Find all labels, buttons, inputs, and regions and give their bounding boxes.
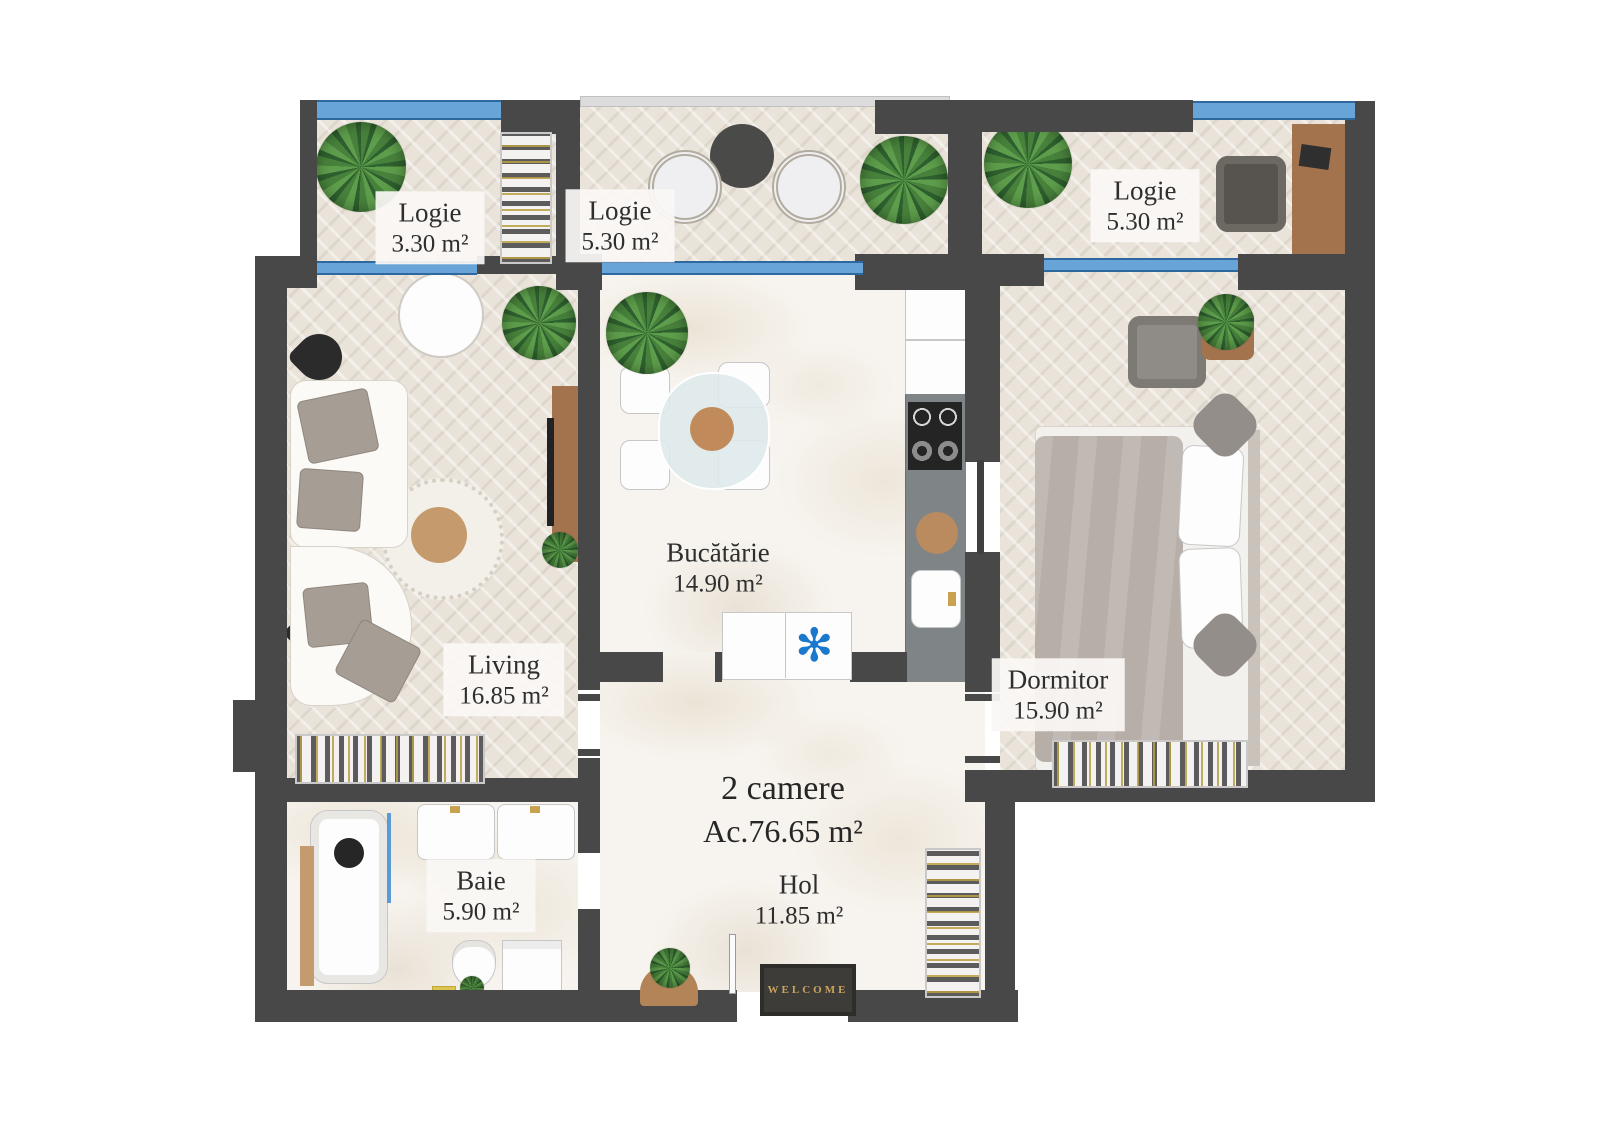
wicker-chair-right: [772, 150, 846, 224]
room-label-bucatarie: Bucătărie 14.90 m²: [666, 536, 769, 599]
headboard: [1248, 430, 1260, 766]
room-label-logie-middle: Logie 5.30 m²: [566, 189, 675, 262]
window: [317, 100, 501, 120]
cutting-board: [916, 512, 958, 554]
room-name: Logie: [582, 194, 659, 227]
sofa-cushion: [296, 468, 364, 532]
wall-segment: [578, 916, 600, 992]
pillow: [1177, 444, 1244, 547]
drying-rack-living: [295, 734, 485, 784]
door-threshold: [965, 756, 1000, 763]
floor-plan: ✻ WELCOME: [0, 0, 1600, 1131]
room-name: Dormitor: [1008, 663, 1109, 696]
fridge: [905, 282, 967, 340]
room-area: 16.85 m²: [459, 681, 548, 712]
shoe-rack: [925, 848, 981, 998]
round-side-table: [398, 272, 484, 358]
shower-glass: [387, 813, 391, 903]
desk: [1292, 124, 1346, 260]
room-name: Baie: [443, 864, 520, 897]
stove: [908, 402, 962, 470]
tall-cabinet: [905, 340, 967, 396]
plant-entry: [650, 948, 690, 988]
room-label-baie: Baie 5.90 m²: [427, 859, 536, 932]
window: [1193, 101, 1355, 120]
room-label-logie-left: Logie 3.30 m²: [376, 191, 485, 264]
wall-segment: [578, 270, 600, 690]
bath-wood-mat: [300, 846, 314, 986]
welcome-mat: WELCOME: [760, 964, 856, 1016]
wall-segment: [255, 256, 287, 1022]
laptop: [1299, 144, 1332, 170]
room-area: 14.90 m²: [666, 569, 769, 600]
welcome-mat-text: WELCOME: [768, 984, 849, 996]
plant-bedroom: [1198, 294, 1254, 350]
drying-rack-bedroom: [1052, 740, 1248, 788]
wall-segment: [233, 700, 257, 772]
window: [1044, 258, 1238, 272]
tv: [547, 418, 554, 526]
plan-title: 2 camere: [703, 767, 863, 811]
wall-segment: [578, 804, 600, 852]
wall-segment: [1345, 270, 1375, 802]
plant-living: [502, 286, 576, 360]
room-name: Hol: [755, 868, 844, 901]
room-name: Logie: [392, 196, 469, 229]
door-threshold: [578, 694, 600, 701]
plan-summary: 2 camere Ac.76.65 m²: [703, 767, 863, 853]
wall-segment: [875, 100, 948, 134]
bedroom-door-leaf: [977, 460, 984, 554]
plant-logie-middle: [860, 136, 948, 224]
room-label-dormitor: Dormitor 15.90 m²: [992, 658, 1125, 731]
plan-total-area: Ac.76.65 m²: [703, 811, 863, 853]
faucet: [530, 806, 540, 813]
room-area: 5.30 m²: [582, 227, 659, 258]
room-area: 3.30 m²: [392, 229, 469, 260]
room-area: 11.85 m²: [755, 901, 844, 932]
door-threshold: [578, 909, 600, 916]
wall-segment: [501, 100, 556, 134]
room-area: 5.90 m²: [443, 897, 520, 928]
table-tray: [690, 407, 734, 451]
wall-segment: [1345, 101, 1375, 270]
drying-rack-logie-left: [500, 132, 552, 264]
faucet: [948, 592, 956, 606]
plant-kitchen: [606, 292, 688, 374]
room-area: 15.90 m²: [1008, 696, 1109, 727]
door-threshold: [578, 749, 600, 756]
wall-segment: [965, 270, 1000, 462]
shower-head: [334, 838, 364, 868]
door-threshold: [578, 846, 600, 853]
wall-segment: [850, 652, 907, 682]
bedroom-armchair: [1128, 316, 1206, 388]
room-label-living: Living 16.85 m²: [443, 643, 564, 716]
plant-logie-right: [984, 120, 1072, 208]
cabinet-divider: [785, 612, 786, 678]
room-name: Living: [459, 648, 548, 681]
faucet: [450, 806, 460, 813]
wall-segment: [985, 802, 1015, 1022]
room-name: Bucătărie: [666, 536, 769, 569]
door-threshold: [656, 652, 663, 682]
wall-segment: [578, 758, 600, 804]
bathtub: [310, 810, 388, 984]
door-threshold: [715, 652, 722, 682]
room-label-logie-right: Logie 5.30 m²: [1091, 169, 1200, 242]
wall-segment: [600, 652, 656, 682]
room-area: 5.30 m²: [1107, 207, 1184, 238]
plant-tv-stand: [542, 532, 578, 568]
room-label-hol: Hol 11.85 m²: [755, 868, 844, 931]
office-chair: [1216, 156, 1286, 232]
wall-segment: [982, 100, 1193, 132]
ac-asterisk-icon: ✻: [795, 622, 834, 668]
room-name: Logie: [1107, 174, 1184, 207]
coffee-table: [411, 507, 467, 563]
wall-segment: [948, 100, 982, 270]
window: [602, 261, 863, 275]
wall-segment: [300, 100, 317, 265]
entry-door-leaf: [729, 934, 736, 994]
